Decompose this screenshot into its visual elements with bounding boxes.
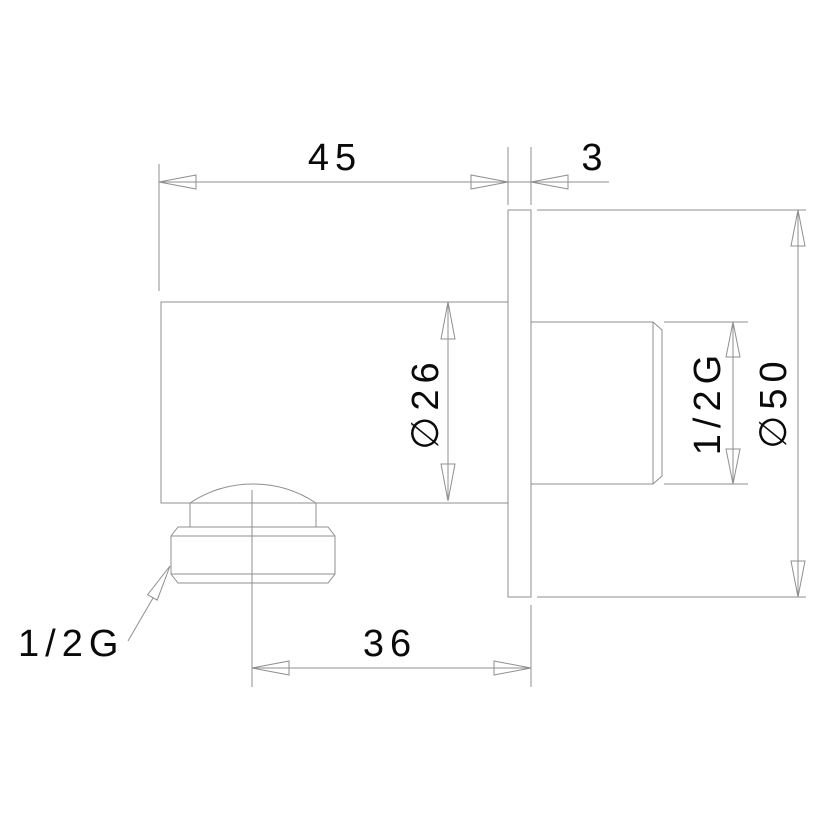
dimension-plate-diameter: ∅50 (537, 210, 806, 597)
dimension-body-diameter: ∅26 (405, 302, 455, 501)
elbow-body-outline (161, 302, 508, 503)
dimension-inlet-thread: 1/2G (664, 322, 748, 484)
dimension-value-45: 45 (308, 137, 362, 179)
dimension-plate-thickness: 3 (531, 137, 609, 189)
dimension-value-inlet-thread: 1/2G (687, 349, 729, 455)
outlet-dome-arc (190, 484, 316, 503)
leader-line (128, 598, 153, 641)
thread-cylinder-outline (531, 322, 662, 484)
label-outlet-thread: 1/2G (18, 566, 170, 665)
dimension-value-d50: ∅50 (753, 355, 795, 448)
dimension-value-3: 3 (581, 137, 608, 179)
wall-plate-outline (508, 210, 531, 597)
dimension-value-36: 36 (363, 623, 417, 665)
technical-drawing-page: 45 3 ∅26 1/2G ∅50 36 (0, 0, 830, 830)
dimension-outlet-offset: 36 (252, 605, 531, 687)
leader-arrowhead-icon (148, 566, 170, 600)
wall-outlet-elbow-drawing: 45 3 ∅26 1/2G ∅50 36 (0, 0, 830, 830)
label-value-outlet-thread: 1/2G (18, 623, 124, 665)
outlet-nut-outline (171, 527, 335, 583)
dimension-body-length: 45 (159, 137, 609, 291)
dimension-value-d26: ∅26 (405, 356, 447, 449)
